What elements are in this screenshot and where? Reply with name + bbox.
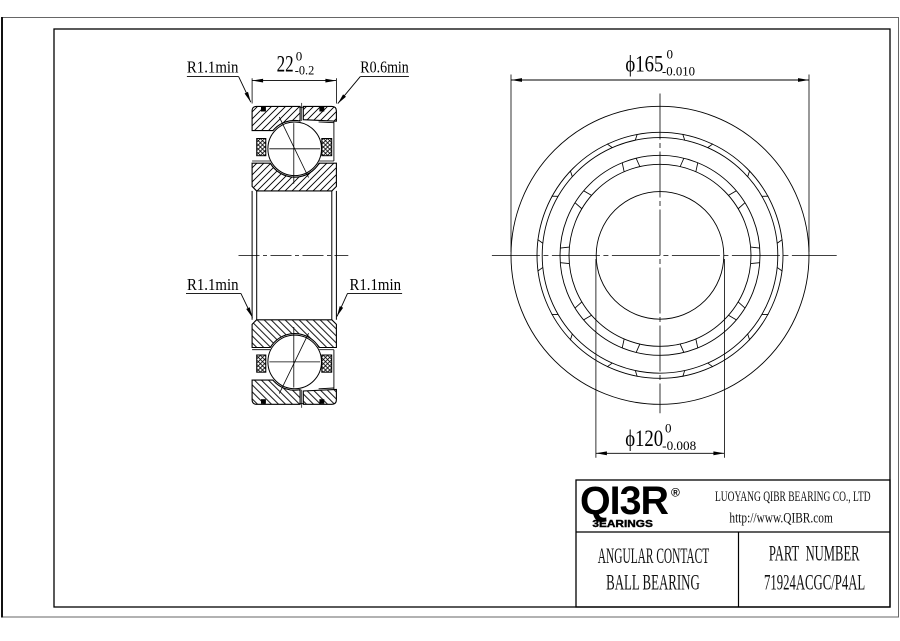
svg-text:QI3R: QI3R	[580, 479, 669, 523]
svg-text:0: 0	[665, 420, 672, 435]
svg-text:0: 0	[667, 46, 674, 61]
svg-text:R0.6min: R0.6min	[360, 58, 409, 77]
svg-text:PART NUMBER: PART NUMBER	[769, 541, 860, 566]
svg-text:ANGULAR CONTACT: ANGULAR CONTACT	[598, 543, 710, 568]
svg-text:LUOYANG QIBR BEARING CO., LTD: LUOYANG QIBR BEARING CO., LTD	[715, 489, 871, 505]
svg-text:R1.1min: R1.1min	[187, 275, 239, 294]
svg-text:3EARINGS: 3EARINGS	[592, 519, 653, 530]
svg-text:-0.008: -0.008	[662, 438, 696, 453]
svg-text:0: 0	[296, 49, 303, 64]
svg-text:http://www.QIBR.com: http://www.QIBR.com	[729, 510, 833, 526]
svg-text:BALL BEARING: BALL BEARING	[606, 570, 700, 595]
svg-text:22: 22	[277, 52, 294, 77]
svg-text:-0.2: -0.2	[295, 62, 315, 77]
svg-text:ϕ165: ϕ165	[625, 51, 663, 76]
svg-text:R1.1min: R1.1min	[350, 275, 402, 294]
svg-text:®: ®	[671, 485, 680, 499]
svg-text:71924ACGC/P4AL: 71924ACGC/P4AL	[764, 570, 865, 595]
svg-text:-0.010: -0.010	[662, 64, 695, 79]
svg-text:ϕ120: ϕ120	[625, 426, 663, 451]
svg-text:R1.1min: R1.1min	[187, 58, 239, 77]
